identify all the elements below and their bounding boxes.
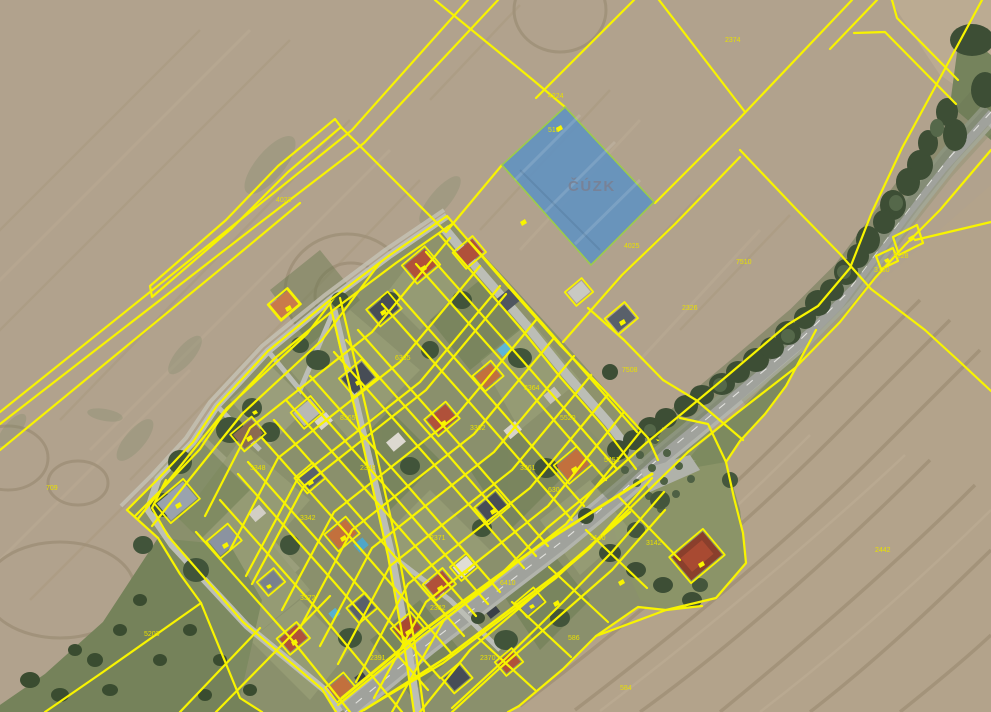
svg-text:ČÚZK: ČÚZK [568,177,616,195]
svg-text:3140: 3140 [590,535,606,542]
svg-text:3348: 3348 [250,465,266,472]
svg-text:2374: 2374 [725,37,741,44]
svg-text:8365: 8365 [340,415,356,422]
svg-text:4022: 4022 [276,197,292,204]
svg-text:7508: 7508 [622,367,638,374]
svg-text:630: 630 [548,487,560,494]
svg-text:5451: 5451 [604,457,620,464]
svg-text:3342: 3342 [300,515,316,522]
svg-text:709: 709 [46,485,58,492]
svg-text:2348: 2348 [360,465,376,472]
svg-text:3361: 3361 [520,465,536,472]
svg-text:2382: 2382 [430,605,446,612]
svg-text:3362: 3362 [470,425,486,432]
svg-text:7510: 7510 [736,259,752,266]
svg-text:5203: 5203 [144,631,160,638]
svg-text:2371: 2371 [430,535,446,542]
svg-text:4224: 4224 [548,93,564,100]
svg-text:3372: 3372 [300,595,316,602]
svg-text:6365: 6365 [395,355,411,362]
svg-text:6410: 6410 [500,580,516,587]
svg-text:2442: 2442 [875,547,891,554]
svg-text:3142: 3142 [646,540,662,547]
svg-text:3128: 3128 [893,253,909,260]
svg-text:5520: 5520 [560,415,576,422]
svg-text:3364: 3364 [524,385,540,392]
svg-text:3130: 3130 [874,267,890,274]
svg-text:2326: 2326 [682,305,698,312]
svg-text:4025: 4025 [624,243,640,250]
svg-text:2370: 2370 [480,655,496,662]
svg-text:2391: 2391 [370,655,386,662]
svg-text:586: 586 [568,635,580,642]
svg-text:584: 584 [620,685,632,692]
